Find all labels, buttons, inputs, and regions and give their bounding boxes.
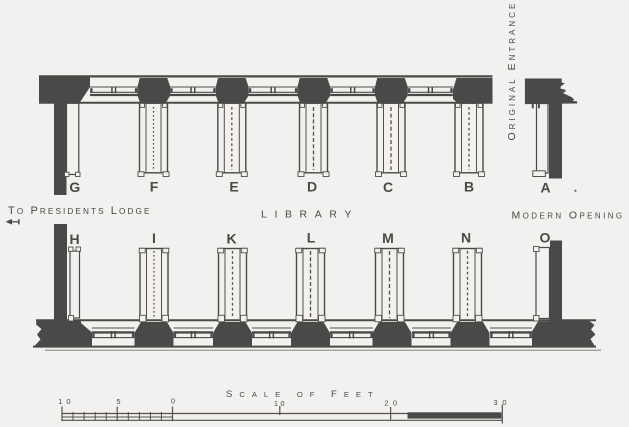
svg-text:L: L	[307, 230, 316, 246]
svg-text:ORIGINAL ENTRANCE: ORIGINAL ENTRANCE	[506, 1, 518, 141]
svg-text:A: A	[540, 180, 550, 196]
svg-text:G: G	[69, 179, 80, 195]
svg-text:I: I	[152, 230, 156, 246]
svg-text:1: 1	[274, 399, 278, 408]
svg-text:C: C	[383, 179, 393, 195]
svg-text:LIBRARY: LIBRARY	[261, 209, 359, 221]
svg-text:MODERN OPENING: MODERN OPENING	[512, 210, 625, 222]
svg-text:N: N	[461, 230, 471, 246]
svg-text:F: F	[150, 179, 159, 195]
svg-text:D: D	[307, 179, 317, 195]
svg-text:0: 0	[502, 398, 506, 407]
svg-text:3: 3	[493, 398, 497, 407]
svg-text:E: E	[229, 179, 238, 195]
svg-text:2: 2	[384, 399, 388, 408]
svg-text:TO PRESIDENTS LODGE: TO PRESIDENTS LODGE	[8, 205, 152, 217]
svg-text:0: 0	[66, 397, 70, 406]
svg-text:0: 0	[171, 397, 175, 406]
svg-text:M: M	[382, 230, 394, 246]
svg-text:H: H	[69, 231, 79, 247]
svg-text:K: K	[226, 231, 236, 247]
svg-text:O: O	[540, 230, 551, 246]
svg-text:5: 5	[116, 397, 120, 406]
svg-text:0: 0	[280, 399, 284, 408]
svg-text:SCALE OF FEET: SCALE OF FEET	[226, 389, 380, 400]
svg-text:1: 1	[58, 397, 62, 406]
svg-text:B: B	[464, 179, 474, 195]
svg-text:0: 0	[393, 399, 397, 408]
